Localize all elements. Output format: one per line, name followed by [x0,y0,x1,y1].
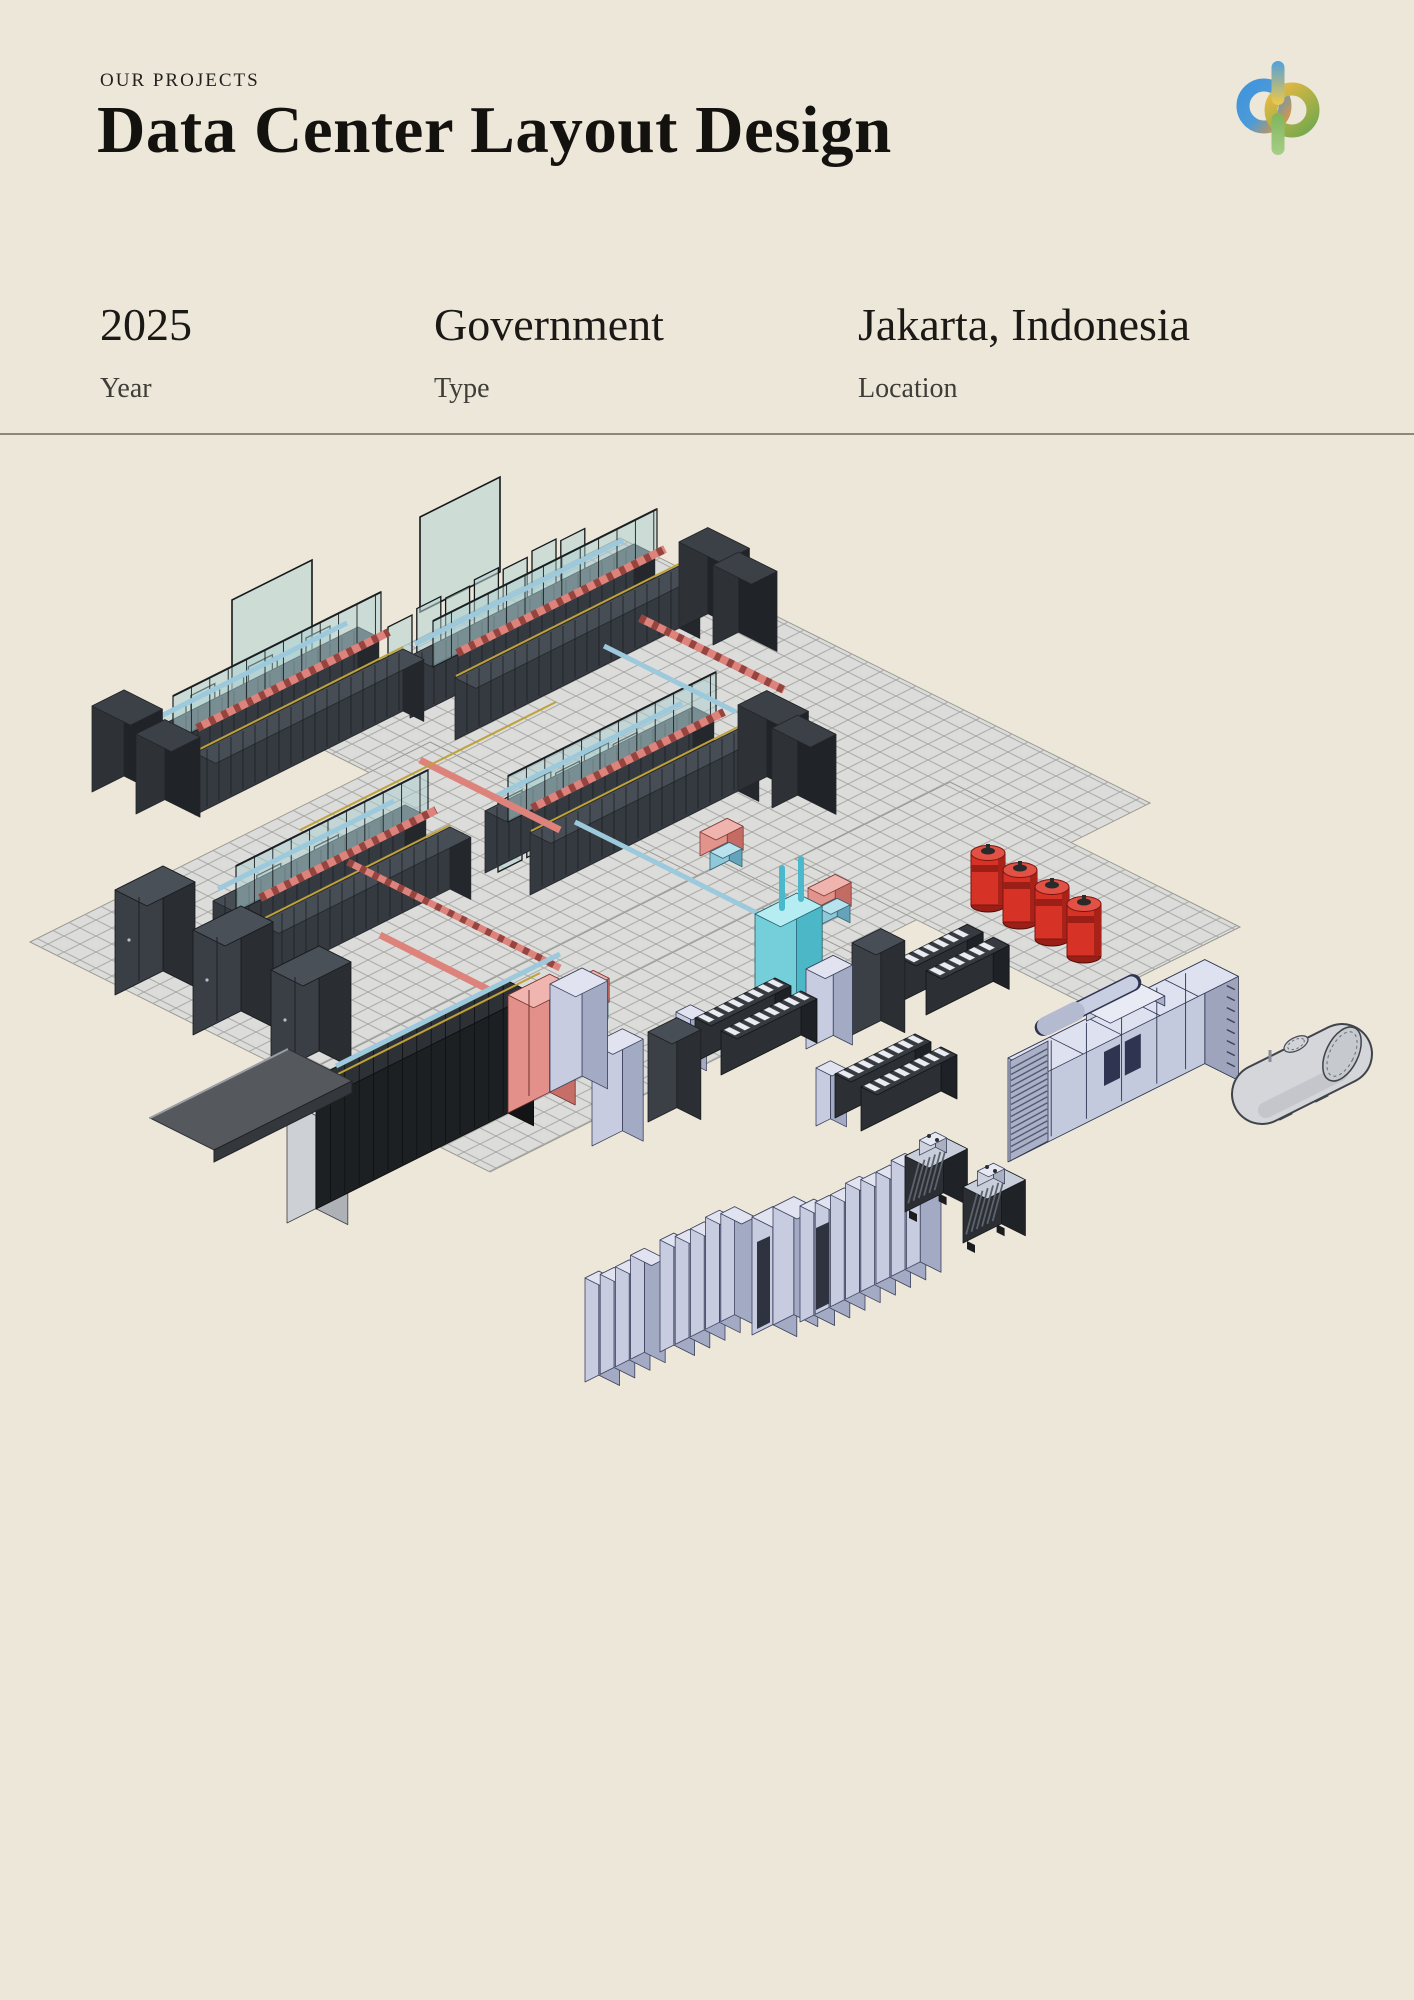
meta-type: Government Type [434,300,834,405]
diesel-generator [1008,960,1238,1162]
dp-logo-icon [1228,58,1332,158]
crac-units [115,866,351,1075]
meta-location: Jakarta, Indonesia Location [858,300,1258,405]
switchgear-lineup [585,1150,941,1386]
ups-cabinets-2 [592,1018,701,1146]
meta-type-label: Type [434,373,834,405]
fuel-tank [1262,1021,1369,1120]
containment-pods [92,477,836,985]
meta-location-value: Jakarta, Indonesia [858,300,1258,351]
ups-cabinets [806,929,905,1049]
eyebrow: OUR PROJECTS [100,70,260,92]
battery-strings [900,924,1009,1015]
piping-hot-cold [300,618,851,1022]
battery-strings-3 [816,1034,957,1131]
meta-location-label: Location [858,373,1258,405]
page-title: Data Center Layout Design [97,92,892,169]
divider [0,433,1414,435]
crah-unit-cyan [755,859,822,1022]
battery-strings-2 [676,978,817,1075]
meta-type-value: Government [434,300,834,351]
bottom-rack-row [287,954,608,1225]
raised-floor-grid [30,538,1240,1172]
fire-suppression-tanks [971,844,1101,963]
access-ramp [150,1049,352,1162]
transformers [905,1132,1025,1253]
